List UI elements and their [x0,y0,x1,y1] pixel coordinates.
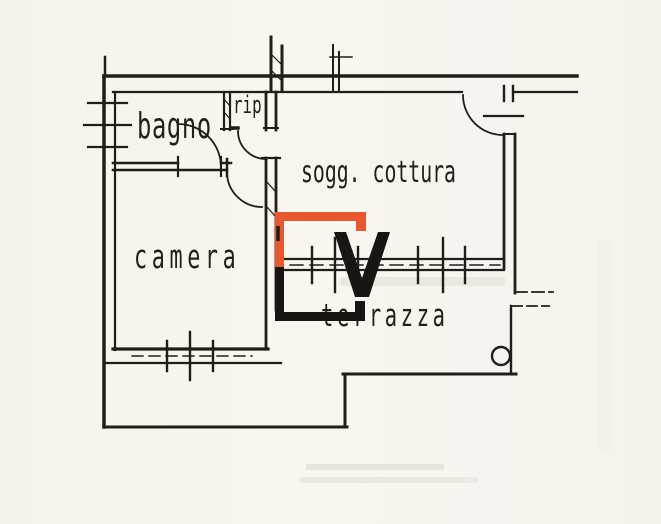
room-label-camera: camera [134,240,240,273]
room-label-sogg-cottura: sogg. cottura [301,158,456,188]
room-label-rip: rip [233,93,262,117]
room-labels-layer: bagno rip sogg. cottura camera terrazza [0,0,661,524]
room-label-bagno: bagno [137,109,212,145]
floor-plan-page: bagno rip sogg. cottura camera terrazza [0,0,661,524]
room-label-terrazza: terrazza [321,301,449,332]
